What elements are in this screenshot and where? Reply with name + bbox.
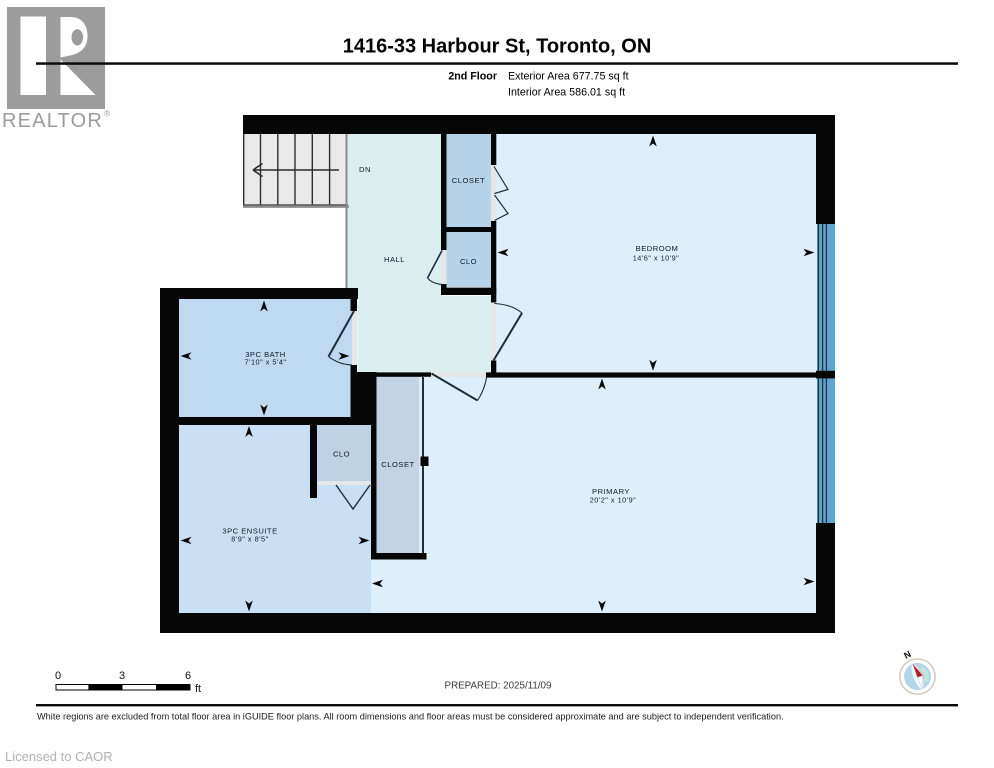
svg-text:20'2" x 10'9": 20'2" x 10'9" xyxy=(590,496,637,505)
svg-text:N: N xyxy=(902,649,912,661)
svg-text:3: 3 xyxy=(119,670,125,682)
svg-text:Licensed to CAOR: Licensed to CAOR xyxy=(5,749,113,764)
svg-text:2nd Floor: 2nd Floor xyxy=(448,71,497,83)
svg-text:0: 0 xyxy=(55,670,61,682)
svg-text:Interior Area 586.01 sq ft: Interior Area 586.01 sq ft xyxy=(508,87,625,99)
svg-text:REALTOR: REALTOR xyxy=(2,110,103,132)
svg-text:HALL: HALL xyxy=(384,255,405,264)
svg-text:BEDROOM: BEDROOM xyxy=(636,244,679,253)
svg-text:7'10" x 5'4": 7'10" x 5'4" xyxy=(245,358,287,367)
svg-text:PREPARED: 2025/11/09: PREPARED: 2025/11/09 xyxy=(445,681,552,692)
svg-text:6: 6 xyxy=(185,670,191,682)
svg-text:Exterior Area 677.75 sq ft: Exterior Area 677.75 sq ft xyxy=(508,71,629,83)
svg-text:White regions are excluded fro: White regions are excluded from total fl… xyxy=(37,712,784,722)
svg-text:CLOSET: CLOSET xyxy=(452,176,485,185)
svg-text:1416-33 Harbour St, Toronto, O: 1416-33 Harbour St, Toronto, ON xyxy=(343,36,652,58)
svg-text:®: ® xyxy=(104,109,111,119)
svg-text:ft: ft xyxy=(195,683,201,695)
svg-text:8'9" x 8'5": 8'9" x 8'5" xyxy=(231,535,268,544)
svg-text:CLO: CLO xyxy=(460,257,477,266)
svg-text:14'6" x 10'9": 14'6" x 10'9" xyxy=(633,254,680,263)
svg-text:CLOSET: CLOSET xyxy=(381,460,414,469)
svg-text:CLO: CLO xyxy=(333,450,350,459)
svg-text:DN: DN xyxy=(359,165,371,174)
